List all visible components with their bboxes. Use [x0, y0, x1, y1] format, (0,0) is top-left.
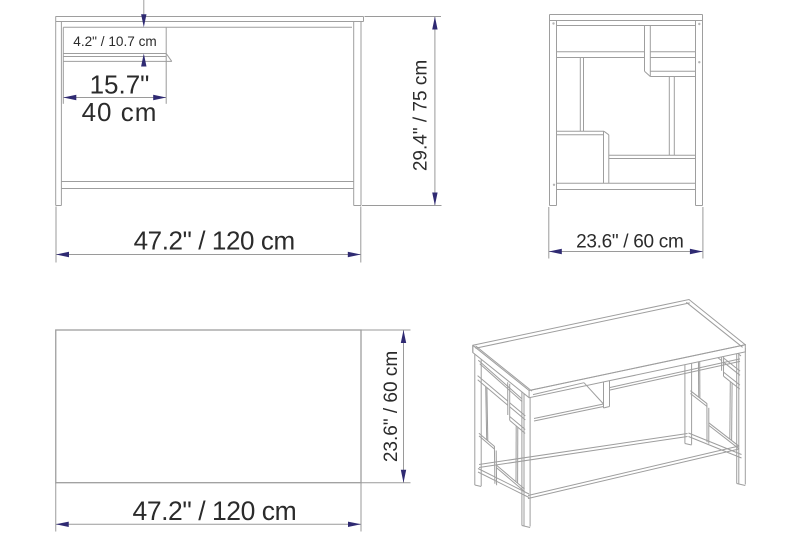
svg-text:47.2" / 120 cm: 47.2" / 120 cm	[134, 225, 295, 255]
svg-text:29.4" / 75 cm: 29.4" / 75 cm	[411, 60, 432, 171]
svg-text:47.2" / 120 cm: 47.2" / 120 cm	[133, 496, 297, 526]
svg-text:4.2" / 10.7 cm: 4.2" / 10.7 cm	[73, 34, 156, 49]
svg-text:23.6" / 60 cm: 23.6" / 60 cm	[576, 232, 683, 253]
svg-text:15.7": 15.7"	[90, 69, 150, 99]
svg-text:40 cm: 40 cm	[82, 97, 158, 127]
svg-text:23.6" / 60 cm: 23.6" / 60 cm	[381, 351, 402, 462]
